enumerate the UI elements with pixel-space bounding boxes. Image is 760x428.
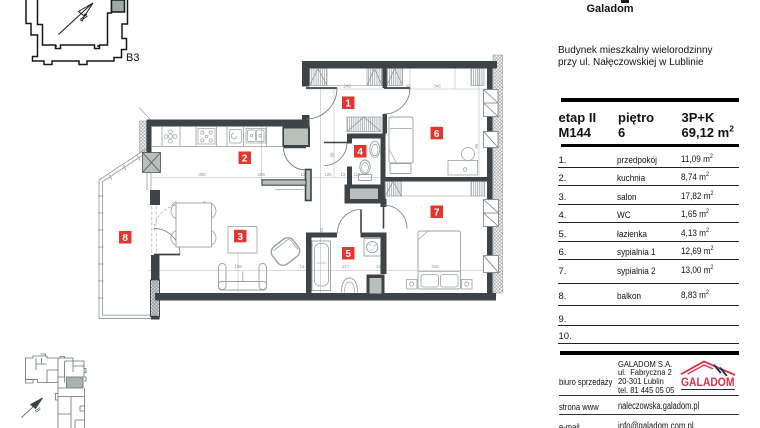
svg-text:3: 3 [237,232,243,243]
svg-text:7: 7 [434,208,440,219]
svg-text:25: 25 [319,227,324,232]
svg-text:125: 125 [324,172,332,177]
svg-text:1: 1 [345,99,351,110]
svg-text:346: 346 [433,84,441,89]
svg-text:298: 298 [257,172,265,177]
svg-text:247: 247 [342,264,350,269]
svg-text:5: 5 [345,249,351,260]
svg-text:8: 8 [122,233,128,244]
svg-text:12: 12 [300,264,305,269]
svg-text:346: 346 [431,264,439,269]
svg-text:198: 198 [235,264,243,269]
svg-text:B3: B3 [126,52,139,64]
svg-text:96: 96 [330,152,335,157]
svg-text:55: 55 [474,143,479,148]
svg-text:6: 6 [434,129,440,140]
svg-text:2: 2 [242,154,248,165]
svg-text:12: 12 [341,172,346,177]
svg-text:249: 249 [343,84,351,89]
svg-text:300: 300 [198,172,206,177]
svg-text:4: 4 [357,147,363,158]
